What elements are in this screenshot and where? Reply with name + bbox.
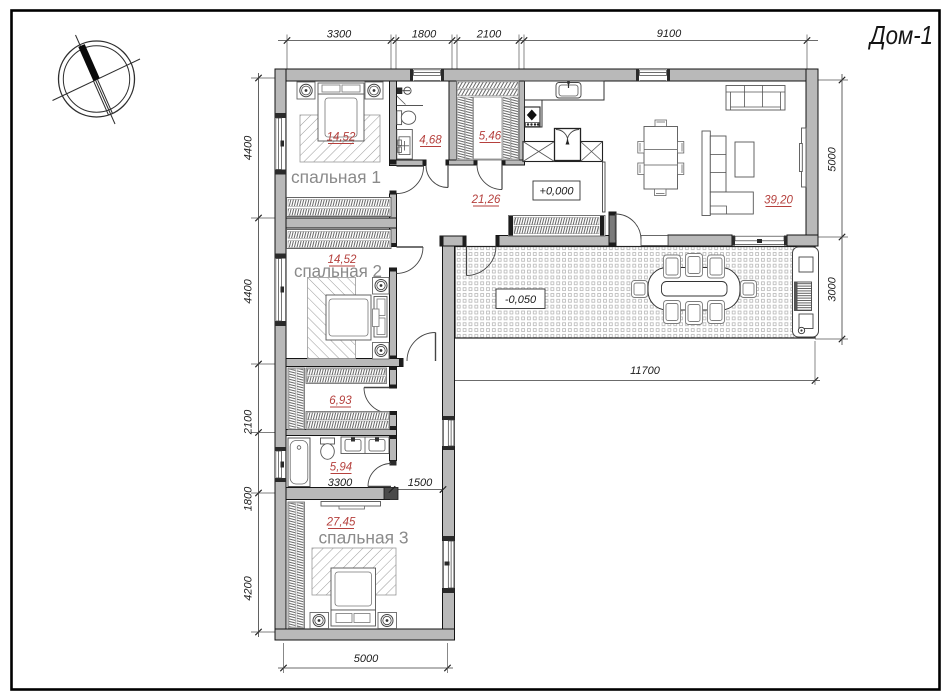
svg-text:спальная 2: спальная 2 xyxy=(294,261,382,281)
svg-text:2100: 2100 xyxy=(243,409,255,435)
svg-text:3300: 3300 xyxy=(327,29,352,41)
svg-text:+0,000: +0,000 xyxy=(540,186,575,198)
svg-text:9100: 9100 xyxy=(657,28,682,40)
svg-text:4400: 4400 xyxy=(243,278,255,303)
svg-text:5,94: 5,94 xyxy=(330,462,352,474)
svg-text:39,20: 39,20 xyxy=(764,195,793,207)
svg-text:6,93: 6,93 xyxy=(329,395,352,407)
svg-text:2100: 2100 xyxy=(476,29,502,41)
svg-text:5000: 5000 xyxy=(827,146,839,171)
svg-text:5000: 5000 xyxy=(354,653,379,665)
svg-text:5,46: 5,46 xyxy=(479,131,502,143)
svg-text:Дом-1: Дом-1 xyxy=(867,20,933,50)
svg-text:1800: 1800 xyxy=(412,29,437,41)
svg-text:4200: 4200 xyxy=(243,575,255,600)
svg-text:спальная 3: спальная 3 xyxy=(319,528,409,548)
svg-text:14,52: 14,52 xyxy=(327,132,356,144)
svg-text:11700: 11700 xyxy=(630,365,661,377)
svg-text:4,68: 4,68 xyxy=(419,135,442,147)
svg-text:1500: 1500 xyxy=(408,477,433,489)
svg-text:4400: 4400 xyxy=(243,135,255,160)
svg-text:1800: 1800 xyxy=(243,486,255,511)
svg-text:21,26: 21,26 xyxy=(471,194,501,206)
svg-text:3000: 3000 xyxy=(827,276,839,301)
svg-text:спальная 1: спальная 1 xyxy=(291,167,381,187)
svg-text:-0,050: -0,050 xyxy=(505,294,537,306)
